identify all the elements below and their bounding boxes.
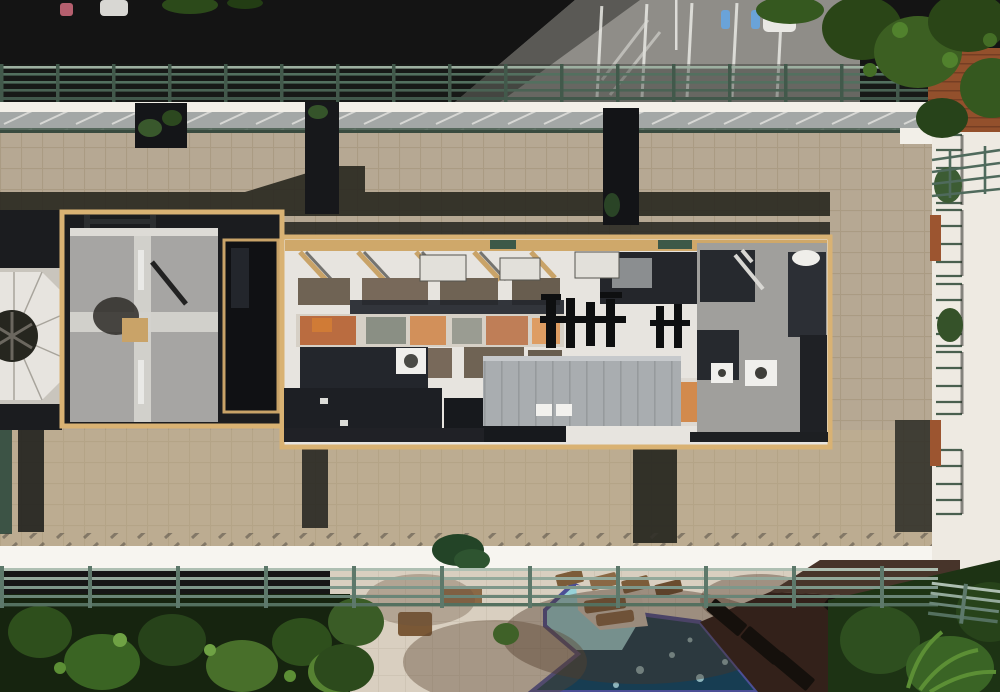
aerial-rooftop-photo xyxy=(0,0,1000,692)
photo-canvas xyxy=(0,0,1000,692)
balcony-plant xyxy=(937,308,963,342)
trees-bottom-left xyxy=(0,594,384,692)
north-perimeter-railing xyxy=(0,64,935,104)
mechanical-well xyxy=(282,237,830,447)
membrane-roof-panel xyxy=(62,212,282,426)
metal-roof xyxy=(483,356,681,426)
deck-bush xyxy=(493,623,519,645)
light-pole xyxy=(675,0,678,50)
well-membrane-right xyxy=(697,243,827,439)
